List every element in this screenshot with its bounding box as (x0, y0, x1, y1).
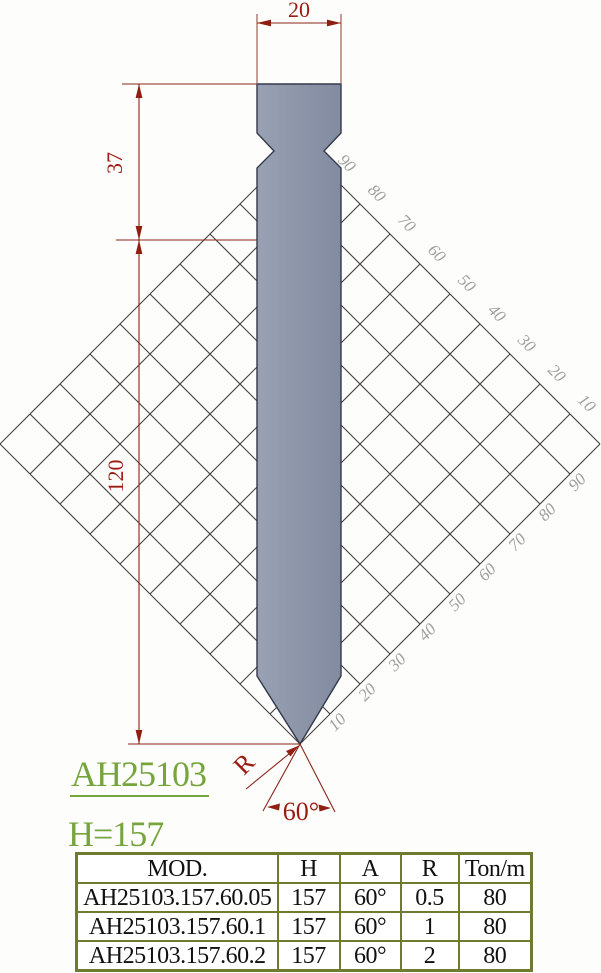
spec-table: MOD. H A R Ton/m AH25103.157.60.05 157 6… (75, 852, 533, 972)
drawing-svg: 90 80 70 60 50 40 30 20 10 10 20 30 40 5… (0, 0, 601, 845)
grid-label: 50 (454, 270, 480, 296)
cell-r: 1 (401, 912, 459, 941)
tip-radius-text: R (228, 747, 261, 780)
table-header-row: MOD. H A R Ton/m (77, 854, 532, 884)
cell-ton: 80 (459, 912, 532, 941)
header-mod: MOD. (77, 854, 278, 884)
header-ton: Ton/m (459, 854, 532, 884)
height-label: H=157 (68, 815, 163, 855)
cell-h: 157 (278, 883, 340, 912)
tip-annotations: R 60° (228, 744, 335, 826)
grid-label: 70 (394, 210, 420, 236)
cell-mod: AH25103.157.60.2 (77, 941, 278, 971)
grid-scale-upper: 90 80 70 60 50 40 30 20 10 (334, 150, 600, 416)
cell-ton: 80 (459, 883, 532, 912)
grid-label: 40 (484, 300, 510, 326)
dimension-width-20: 20 (257, 0, 341, 83)
grid-label: 20 (544, 360, 570, 386)
grid-label: 10 (574, 390, 600, 416)
grid-label: 30 (384, 649, 411, 676)
punch-tool-profile (257, 84, 341, 744)
grid-label: 60 (424, 240, 450, 266)
header-r: R (401, 854, 459, 884)
cell-h: 157 (278, 912, 340, 941)
table-row: AH25103.157.60.05 157 60° 0.5 80 (77, 883, 532, 912)
cell-mod: AH25103.157.60.1 (77, 912, 278, 941)
dim-37-text: 37 (102, 152, 127, 174)
cell-h: 157 (278, 941, 340, 971)
cell-mod: AH25103.157.60.05 (77, 883, 278, 912)
dim-width-text: 20 (288, 0, 310, 22)
table-row: AH25103.157.60.1 157 60° 1 80 (77, 912, 532, 941)
cell-a: 60° (340, 912, 401, 941)
cell-ton: 80 (459, 941, 532, 971)
grid-label: 80 (364, 180, 390, 206)
tip-angle-text: 60° (283, 797, 319, 826)
cell-a: 60° (340, 883, 401, 912)
technical-drawing-page: 90 80 70 60 50 40 30 20 10 10 20 30 40 5… (0, 0, 601, 973)
table-row: AH25103.157.60.2 157 60° 2 80 (77, 941, 532, 971)
cell-r: 0.5 (401, 883, 459, 912)
dim-120-text: 120 (103, 460, 128, 493)
header-a: A (340, 854, 401, 884)
header-h: H (278, 854, 340, 884)
cell-a: 60° (340, 941, 401, 971)
grid-label: 30 (513, 330, 540, 357)
model-label: AH25103 (70, 755, 209, 797)
cell-r: 2 (401, 941, 459, 971)
